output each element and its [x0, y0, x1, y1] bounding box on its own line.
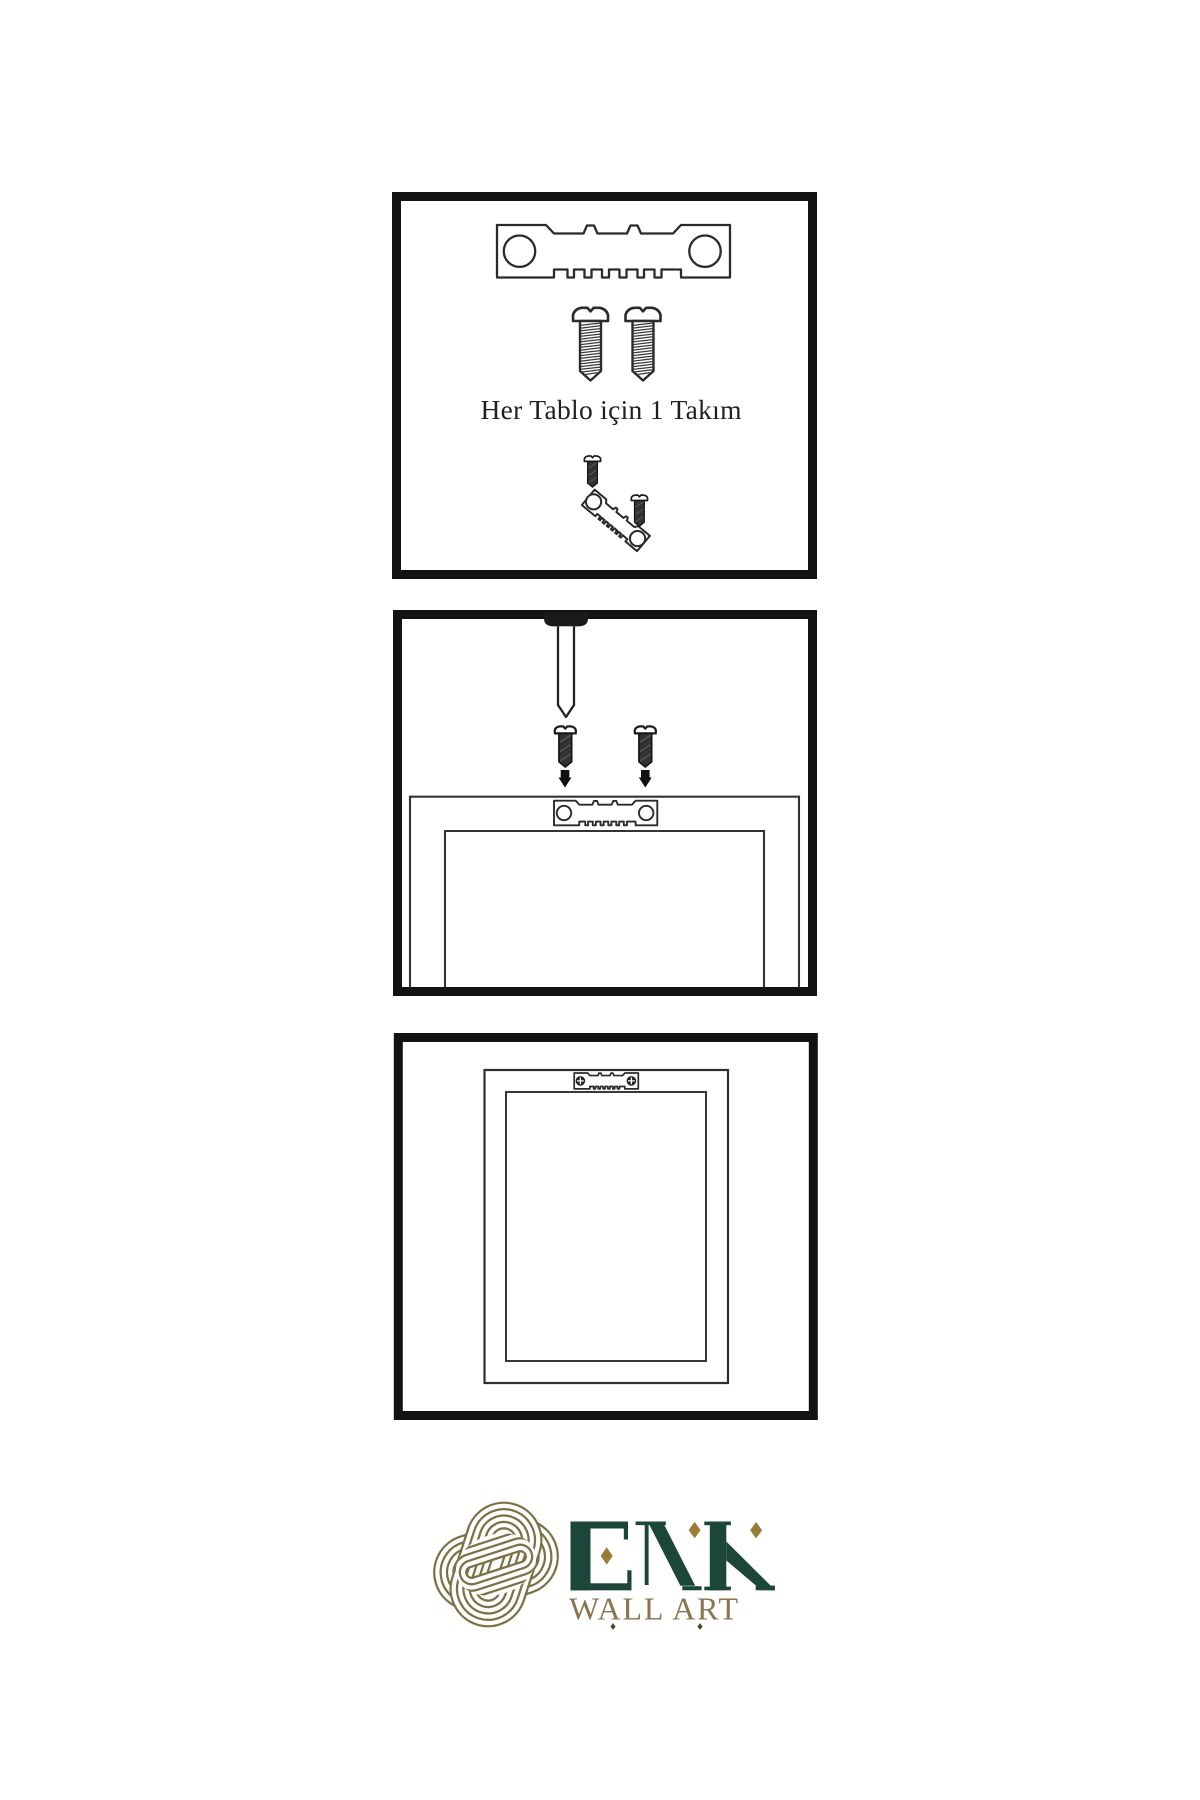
svg-text:Her Tablo için 1 Takım: Her Tablo için 1 Takım — [481, 394, 742, 425]
svg-text:WALL ART: WALL ART — [569, 1591, 738, 1627]
